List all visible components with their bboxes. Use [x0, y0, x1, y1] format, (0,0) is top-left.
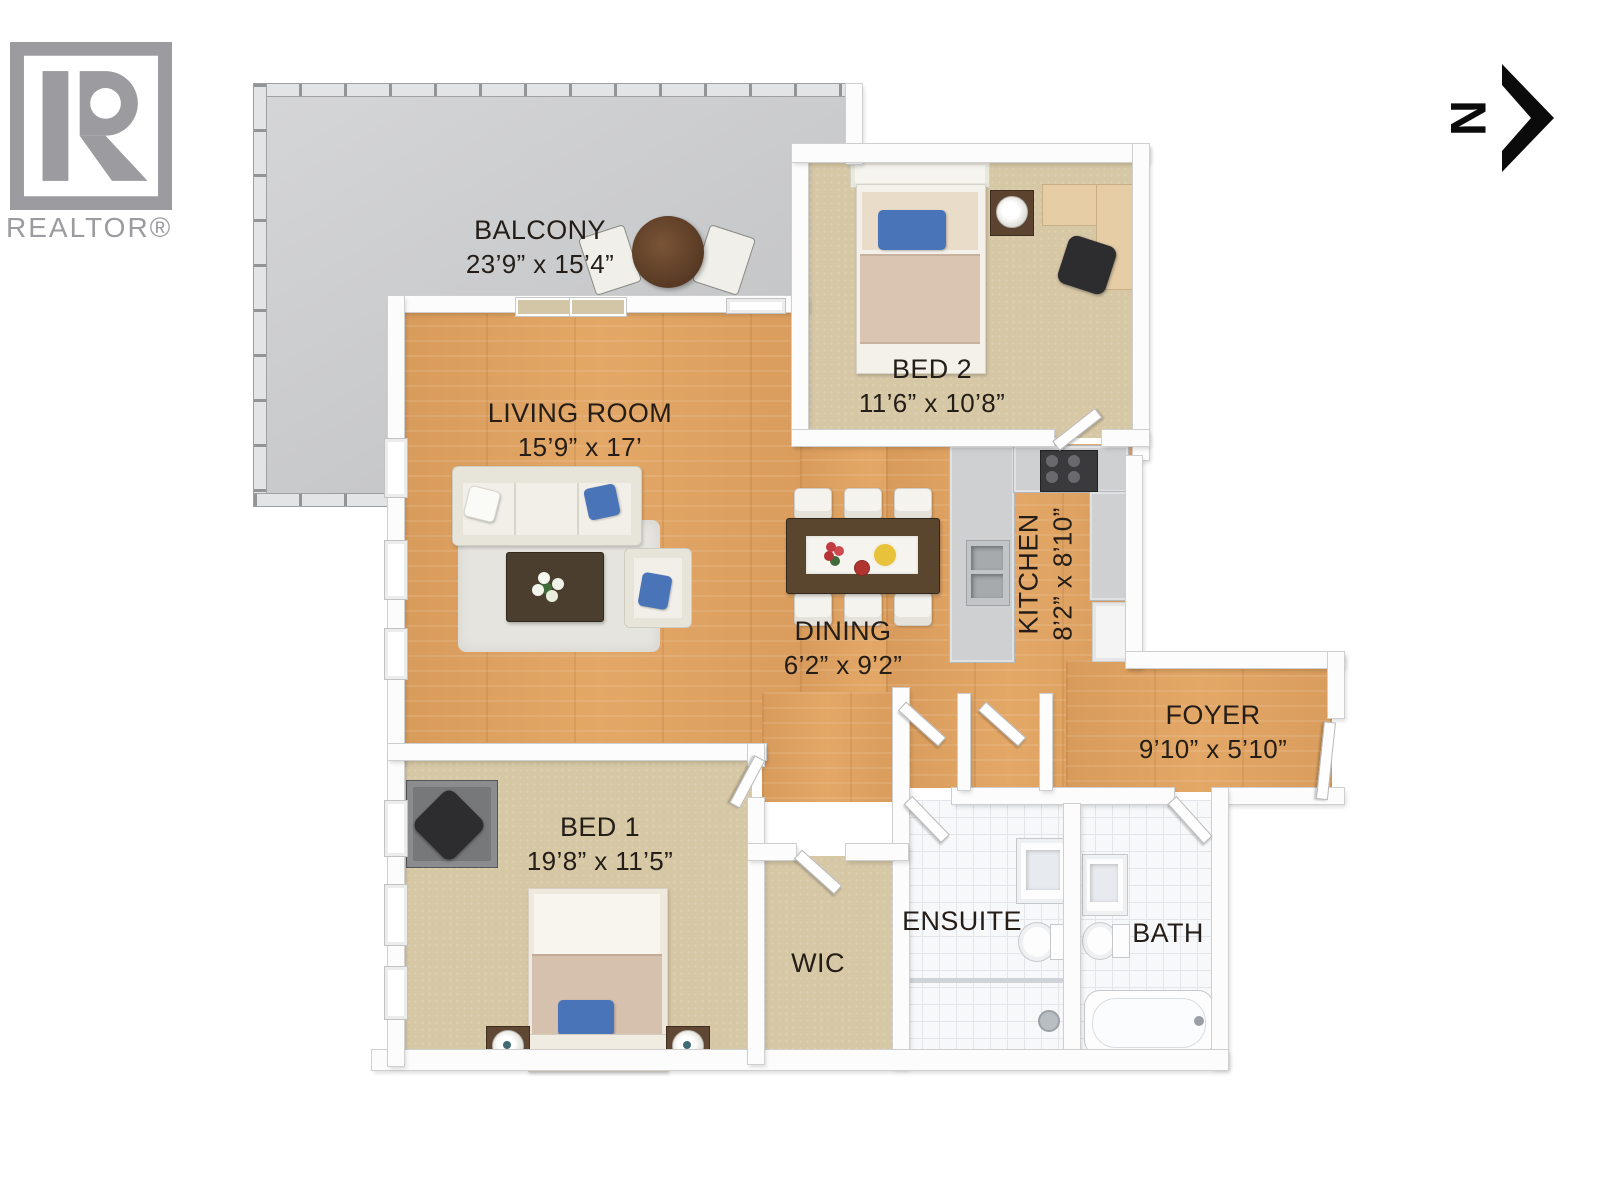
bathrooms-top-wall — [952, 788, 1174, 804]
balcony-railing-top — [254, 84, 854, 96]
room-dims: 15’9” x 17’ — [488, 431, 672, 465]
balcony-label: BALCONY 23’9” x 15’4” — [466, 213, 614, 282]
wic-top-wall-left — [748, 844, 796, 860]
sofa-pillow-blue — [583, 483, 621, 521]
armchair-pillow-blue — [637, 572, 672, 611]
foyer-top-wall — [1126, 652, 1344, 668]
realtor-logo — [10, 42, 172, 215]
bed2-right-wall — [1133, 144, 1149, 460]
bath-right-wall — [1212, 788, 1228, 1068]
living-room-window — [726, 298, 786, 314]
bath-label: BATH — [1132, 916, 1204, 951]
corridor-floor — [762, 692, 893, 802]
ensuite-left-wall — [893, 688, 909, 1068]
tub-faucet-icon — [1194, 1016, 1204, 1026]
balcony-railing-left — [254, 84, 266, 506]
dining-chair — [794, 488, 832, 520]
foyer-label: FOYER 9’10” x 5’10” — [1139, 698, 1287, 767]
bed2-left-wall — [792, 144, 808, 444]
room-name: ENSUITE — [902, 904, 1022, 939]
shower-glass — [908, 978, 1066, 983]
coffee-table — [506, 552, 604, 622]
ensuite-label: ENSUITE — [902, 904, 1022, 939]
shower-head-icon — [1038, 1010, 1060, 1032]
bath-toilet-tank — [1112, 924, 1130, 958]
bed1-right-wall — [748, 798, 764, 1064]
north-chevron-icon: N — [1434, 64, 1554, 172]
living-room-window — [384, 438, 408, 498]
dining-label: DINING 6’2” x 9’2” — [784, 614, 903, 683]
ensuite-sink — [1026, 850, 1060, 890]
bed2-bottom-wall-stub — [1102, 430, 1149, 446]
living-room-left-wall — [388, 296, 404, 764]
dining-chair — [844, 488, 882, 520]
stove-burners — [1046, 455, 1058, 467]
bed2-lamp — [996, 196, 1028, 228]
bed1-window — [384, 884, 408, 946]
living-room-window — [384, 628, 408, 680]
room-name: DINING — [784, 614, 903, 649]
room-name: BALCONY — [466, 213, 614, 248]
room-name: BATH — [1132, 916, 1204, 951]
bed2-pillow-blue — [878, 210, 946, 250]
bed1-window — [384, 966, 408, 1020]
bed1-lamp-finial — [503, 1041, 511, 1049]
hall-closet-partition — [958, 694, 970, 790]
balcony-sliding-door-panel — [570, 298, 626, 316]
bed2-bottom-wall — [792, 430, 1054, 446]
sink-basin — [971, 574, 1003, 598]
room-dims: 8’2” x 8’10” — [1047, 507, 1081, 640]
bed1-top-wall — [388, 744, 766, 760]
coffee-table-flowers — [538, 572, 550, 584]
ensuite-bath-divider-wall — [1064, 804, 1080, 1062]
room-dims: 11’6” x 10’8” — [859, 387, 1005, 421]
kitchen-counter-right — [1090, 492, 1128, 600]
room-name: WIC — [791, 946, 845, 981]
bed1-pillow-blue — [558, 1000, 614, 1036]
room-name: BED 2 — [859, 352, 1005, 387]
bottom-outer-wall — [372, 1050, 1228, 1070]
dining-chair — [894, 488, 932, 520]
room-dims: 9’10” x 5’10” — [1139, 733, 1287, 767]
north-arrow: N — [1434, 64, 1554, 177]
sink-basin — [971, 546, 1003, 570]
room-name: LIVING ROOM — [488, 396, 672, 431]
kitchen-label: KITCHEN 8’2” x 8’10” — [1012, 507, 1081, 640]
balcony-sliding-door-panel — [516, 298, 572, 316]
room-dims: 6’2” x 9’2” — [784, 649, 903, 683]
living-room-window — [384, 540, 408, 600]
room-dims: 19’8” x 11’5” — [527, 845, 673, 879]
bathtub-basin — [1092, 998, 1206, 1048]
floor-plan-page: REALTOR® N — [0, 0, 1600, 1200]
hall-closet-partition — [1040, 694, 1052, 790]
kitchen-right-wall — [1126, 456, 1142, 668]
dining-flowers — [826, 542, 836, 552]
room-name: FOYER — [1139, 698, 1287, 733]
bed1-lamp-finial — [683, 1041, 691, 1049]
room-name: KITCHEN — [1012, 507, 1047, 640]
bed1-sheets — [534, 894, 660, 956]
living-room-label: LIVING ROOM 15’9” x 17’ — [488, 396, 672, 465]
north-letter: N — [1440, 100, 1496, 136]
balcony-table — [632, 216, 704, 288]
realtor-logo-text: REALTOR® — [6, 212, 186, 244]
realtor-r-icon — [10, 42, 172, 210]
bed1-label: BED 1 19’8” x 11’5” — [527, 810, 673, 879]
bed1-window — [384, 800, 408, 857]
balcony-railing-bottom — [254, 494, 400, 506]
bed2-top-wall — [792, 144, 1149, 162]
foyer-right-wall — [1328, 652, 1344, 718]
dining-bowl — [854, 560, 870, 576]
bed2-label: BED 2 11’6” x 10’8” — [859, 352, 1005, 421]
room-dims: 23’9” x 15’4” — [466, 248, 614, 282]
bed2-blanket — [860, 254, 980, 344]
wic-top-wall-right — [846, 844, 908, 860]
bath-sink — [1090, 864, 1118, 902]
dining-plate — [872, 542, 898, 568]
wic-label: WIC — [791, 946, 845, 981]
room-name: BED 1 — [527, 810, 673, 845]
